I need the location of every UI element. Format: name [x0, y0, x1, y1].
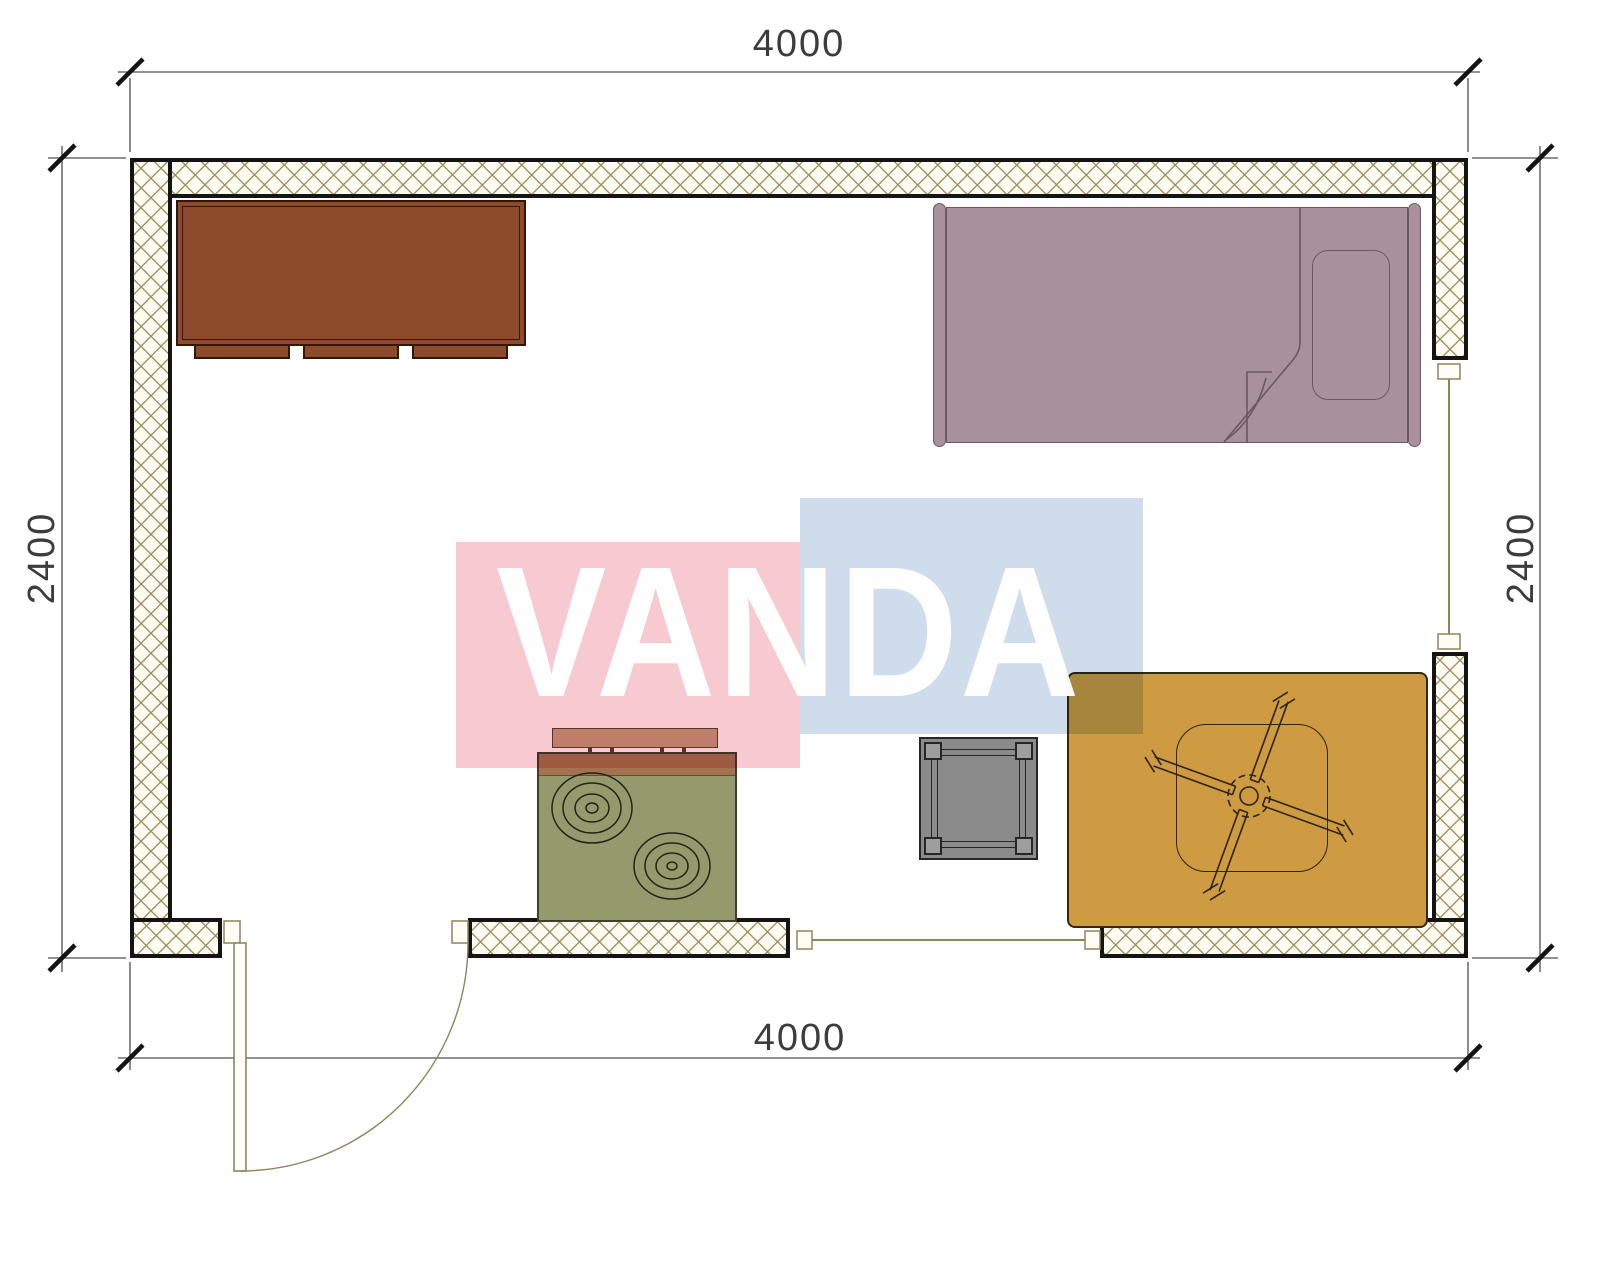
window-jamb-cap: [1438, 634, 1460, 649]
door-jamb-cap: [452, 921, 468, 943]
door-jamb-cap: [224, 921, 240, 943]
window-bottom: [797, 931, 1100, 949]
stove-burner: [634, 833, 710, 899]
floor-plan-canvas: 4000 4000 2400 2400: [0, 0, 1600, 1280]
door: [224, 921, 468, 1171]
window-right: [1438, 364, 1460, 649]
door-leaf: [234, 943, 246, 1171]
stove-burner: [552, 773, 632, 843]
window-jamb-cap: [1085, 931, 1100, 949]
window-jamb-cap: [1438, 364, 1460, 379]
bed-blanket-fold: [1224, 208, 1300, 442]
watermark-text: VANDA: [496, 540, 1081, 726]
ceiling-fan-icon: [1141, 688, 1356, 903]
door-swing-arc: [240, 943, 468, 1171]
window-jamb-cap: [797, 931, 812, 949]
